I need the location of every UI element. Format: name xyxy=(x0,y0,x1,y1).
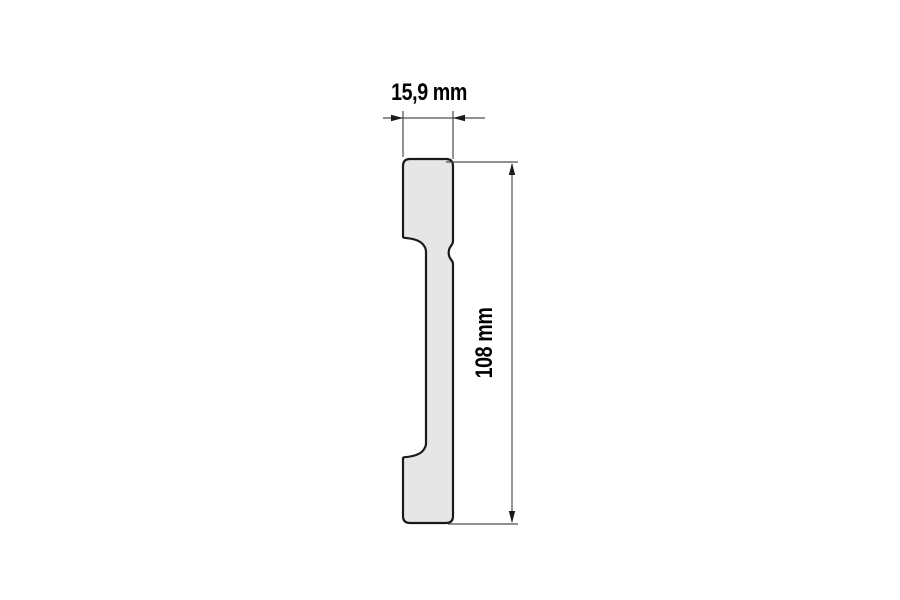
width-dimension: 15,9 mm xyxy=(383,78,485,159)
profile-shape xyxy=(403,159,453,523)
arrowhead-right-icon xyxy=(391,115,403,121)
arrowhead-up-icon xyxy=(509,163,515,175)
profile-cross-section xyxy=(403,159,453,523)
height-dimension: 108 mm xyxy=(446,162,518,524)
profile-drawing-canvas: 15,9 mm 108 mm xyxy=(0,0,900,600)
arrowhead-down-icon xyxy=(509,511,515,523)
arrowhead-left-icon xyxy=(453,115,465,121)
width-dimension-label: 15,9 mm xyxy=(391,78,467,105)
height-dimension-label: 108 mm xyxy=(470,308,497,379)
